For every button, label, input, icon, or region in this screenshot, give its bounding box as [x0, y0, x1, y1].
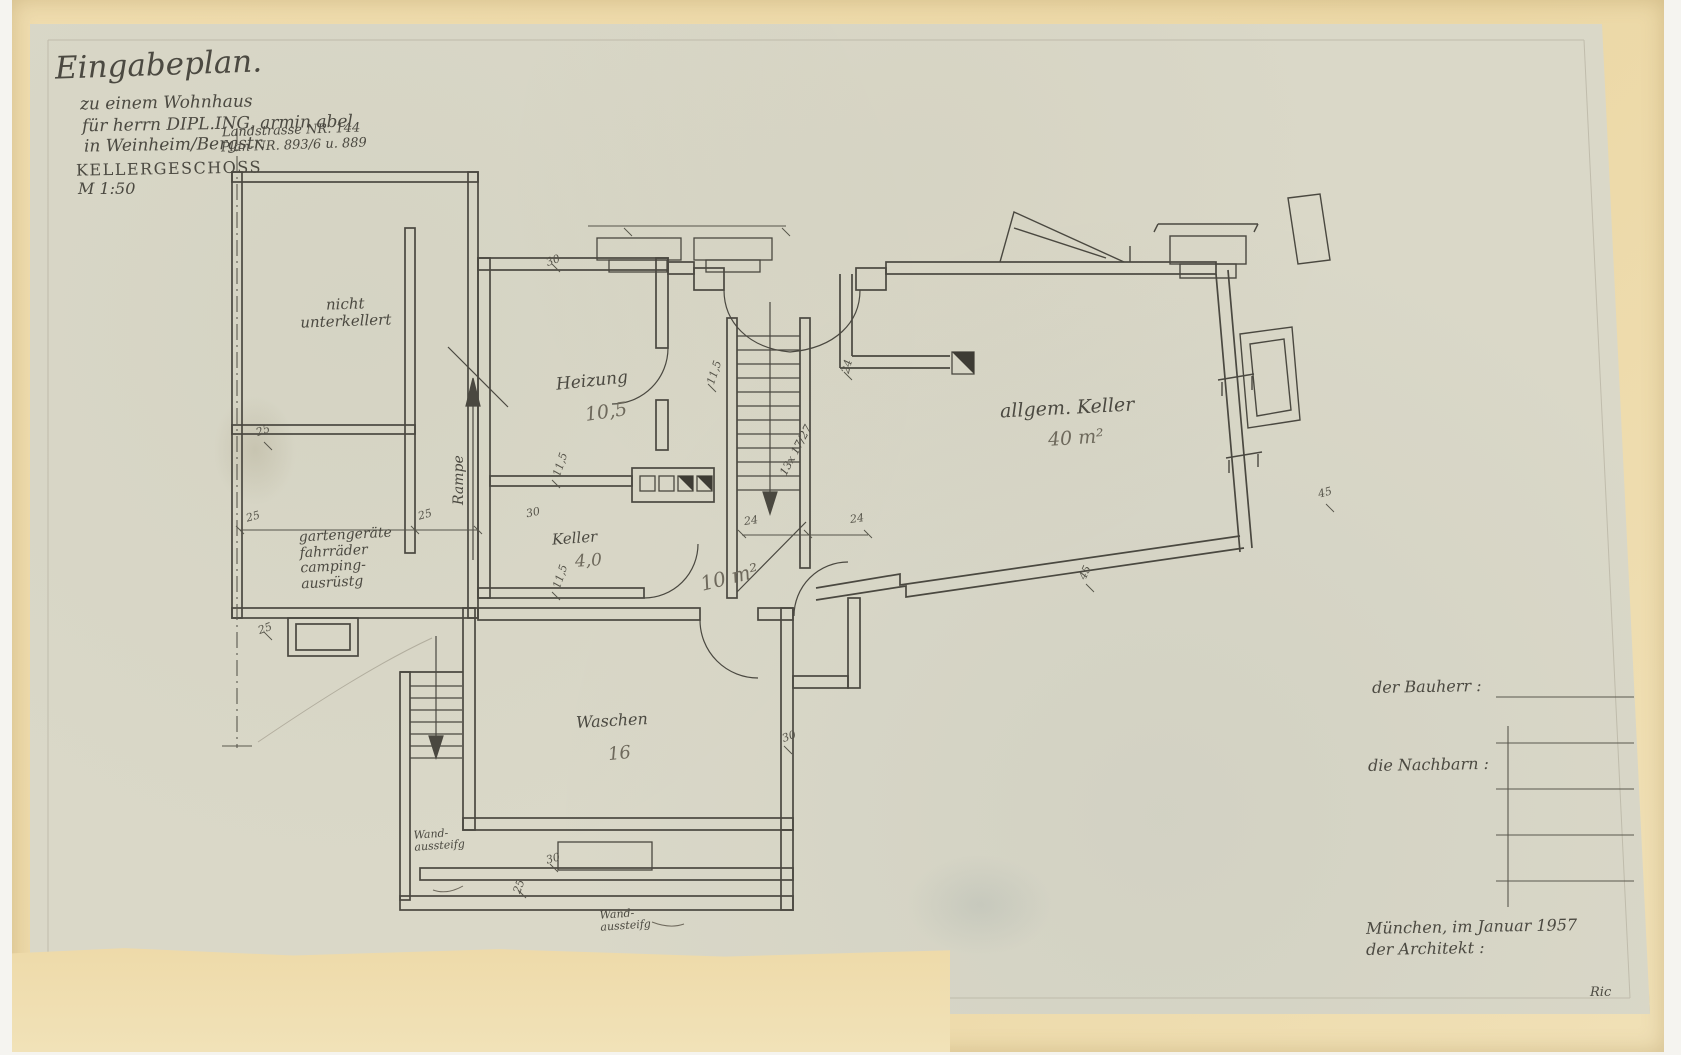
wall-bracing-note-1: Wand- aussteifg — [413, 826, 465, 854]
room-label-line: unterkellert — [300, 311, 392, 331]
room-label-nicht-unterkellert: nicht unterkellert — [299, 294, 391, 331]
date-line: München, im Januar 1957 — [1366, 916, 1577, 938]
drawing-name: KELLERGESCHOSS — [76, 158, 262, 179]
reference-lines — [222, 128, 684, 926]
flue-symbols — [678, 352, 974, 491]
room-area-waschen: 16 — [607, 743, 632, 765]
backing-sheet-bottom-edge — [12, 946, 950, 1052]
room-area-allgem-keller: 40 m² — [1047, 426, 1104, 451]
room-label-waschen: Waschen — [576, 710, 649, 732]
bauherr-label: der Bauherr : — [1372, 677, 1482, 697]
architekt-label: der Architekt : — [1366, 939, 1485, 959]
drawing-scale: M 1:50 — [78, 180, 135, 198]
dimension-label: 24 — [849, 511, 865, 526]
draftsman-initials: Ric — [1590, 986, 1611, 1001]
ramp-label: Rampe — [452, 455, 468, 505]
wall-bracing-note-2: Wand- aussteifg — [599, 906, 651, 934]
scanned-plan-page: Eingabeplan. zu einem Wohnhaus für herrn… — [0, 0, 1681, 1055]
room-label-geraete: gartengeräte fahrräder camping- ausrüstg — [298, 526, 394, 593]
room-area-keller: 4,0 — [574, 551, 602, 572]
plan-title: Eingabeplan. — [54, 44, 262, 86]
nachbarn-label: die Nachbarn : — [1368, 755, 1489, 775]
sheet-border-line — [48, 40, 1630, 998]
room-label-keller: Keller — [551, 528, 597, 548]
dimension-label: 24 — [743, 513, 759, 528]
plan-subtitle-1: zu einem Wohnhaus — [80, 92, 253, 114]
